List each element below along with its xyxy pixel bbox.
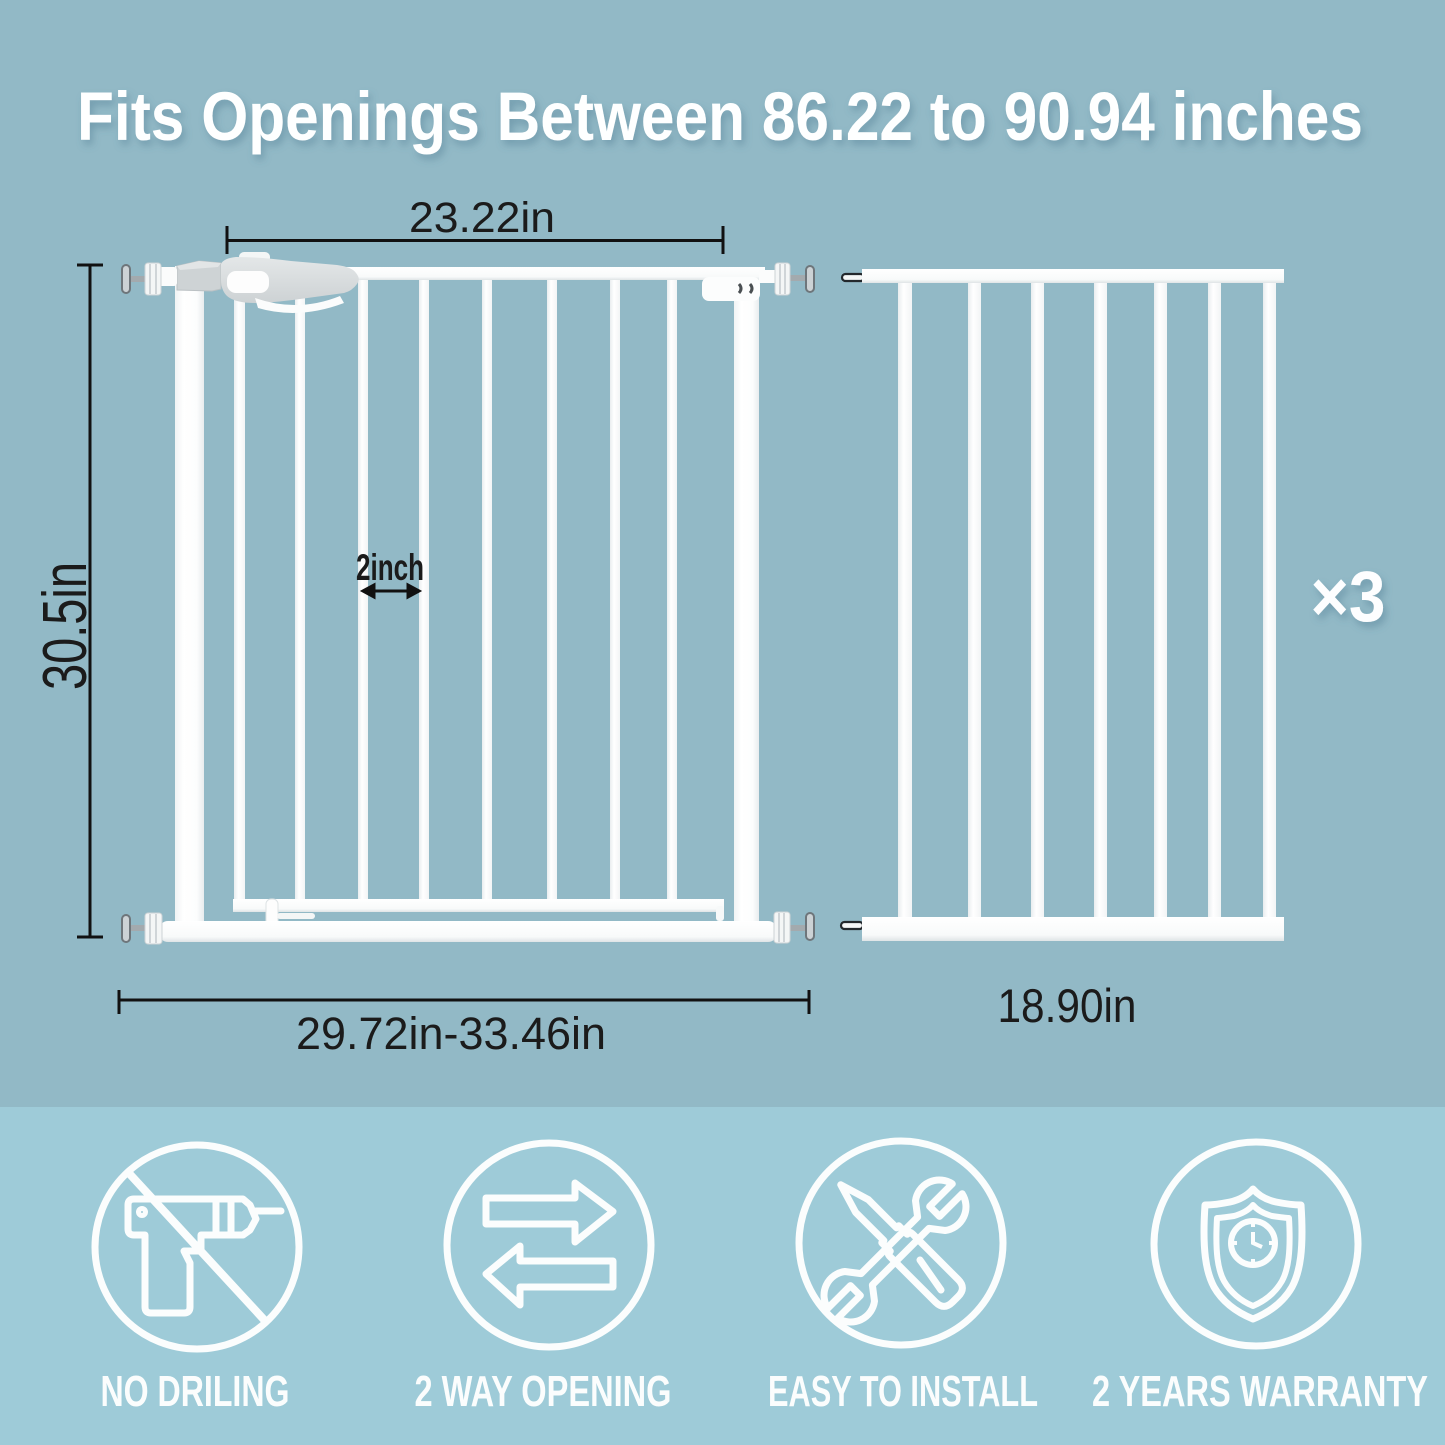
svg-text:×3: ×3 [1311, 558, 1386, 637]
svg-text:2 YEARS WARRANTY: 2 YEARS WARRANTY [1092, 1367, 1428, 1416]
svg-text:18.90in: 18.90in [998, 979, 1137, 1032]
svg-text:NO DRILING: NO DRILING [101, 1367, 290, 1416]
svg-text:29.72in-33.46in: 29.72in-33.46in [296, 1008, 606, 1059]
svg-text:EASY TO INSTALL: EASY TO INSTALL [768, 1367, 1038, 1416]
svg-text:23.22in: 23.22in [409, 194, 555, 242]
svg-text:2inch: 2inch [356, 547, 424, 588]
svg-text:30.5in: 30.5in [31, 562, 100, 690]
svg-text:Fits Openings Between 86.22 to: Fits Openings Between 86.22 to 90.94 inc… [77, 78, 1363, 155]
svg-text:2 WAY OPENING: 2 WAY OPENING [415, 1367, 672, 1416]
